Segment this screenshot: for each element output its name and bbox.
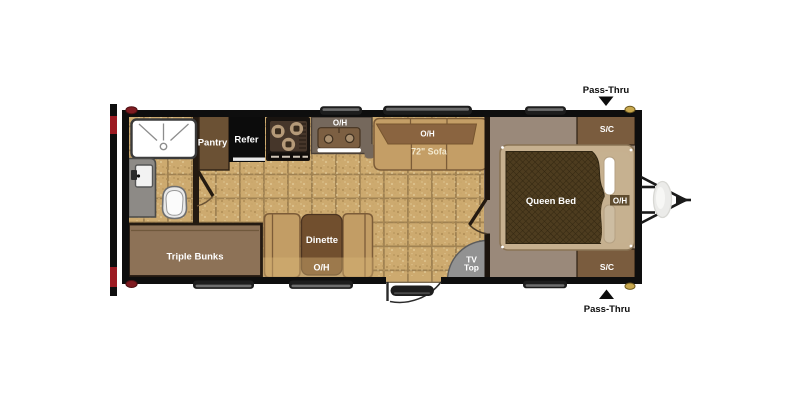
svg-text:Pass-Thru: Pass-Thru xyxy=(583,85,630,96)
svg-text:Top: Top xyxy=(464,263,479,273)
svg-text:S/C: S/C xyxy=(600,124,614,134)
svg-text:O/H: O/H xyxy=(333,119,347,128)
svg-text:O/H: O/H xyxy=(313,263,329,273)
svg-text:Refer: Refer xyxy=(234,135,259,146)
svg-text:Dinette: Dinette xyxy=(306,235,338,246)
svg-text:72" Sofa: 72" Sofa xyxy=(411,147,447,157)
svg-text:Pass-Thru: Pass-Thru xyxy=(584,304,631,315)
svg-text:S/C: S/C xyxy=(600,262,614,272)
svg-text:O/H: O/H xyxy=(613,197,627,206)
svg-text:Triple Bunks: Triple Bunks xyxy=(166,252,223,263)
svg-text:O/H: O/H xyxy=(420,129,434,138)
svg-text:Queen Bed: Queen Bed xyxy=(526,196,576,207)
svg-text:Pantry: Pantry xyxy=(198,138,228,149)
